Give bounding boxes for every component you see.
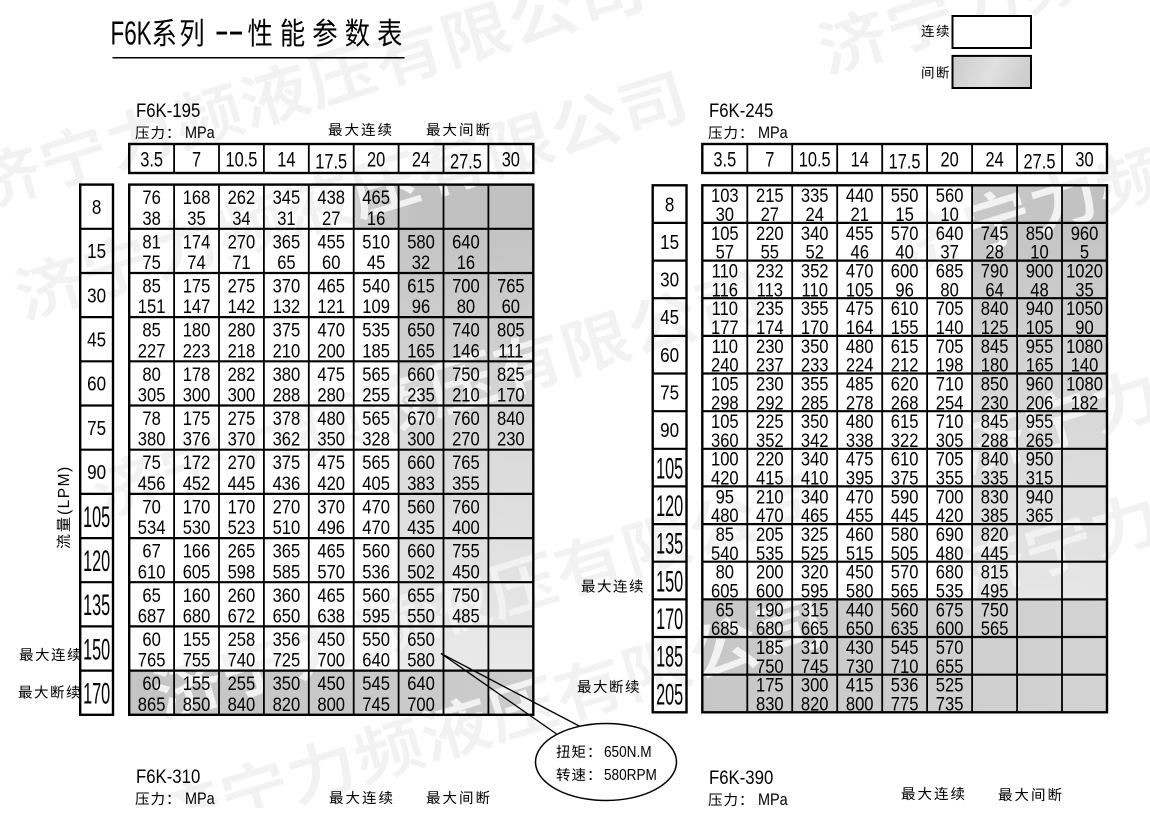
svg-text:170: 170 bbox=[183, 496, 211, 518]
svg-text:765: 765 bbox=[497, 275, 525, 297]
svg-text:485: 485 bbox=[452, 605, 480, 627]
svg-text:F6K-195: F6K-195 bbox=[136, 100, 200, 121]
svg-text:175: 175 bbox=[183, 275, 211, 297]
svg-text:MPa: MPa bbox=[758, 124, 788, 142]
svg-text:150: 150 bbox=[656, 565, 683, 599]
svg-text:438: 438 bbox=[317, 187, 345, 209]
svg-text:F6K: F6K bbox=[111, 14, 152, 51]
svg-text:465: 465 bbox=[362, 187, 390, 209]
svg-text:502: 502 bbox=[407, 561, 435, 583]
svg-text:282: 282 bbox=[228, 364, 256, 386]
svg-text:400: 400 bbox=[452, 517, 480, 539]
svg-text:640: 640 bbox=[407, 673, 435, 695]
svg-text:550: 550 bbox=[407, 605, 435, 627]
svg-text:168: 168 bbox=[183, 187, 211, 209]
svg-text:750: 750 bbox=[452, 585, 480, 607]
svg-text:15: 15 bbox=[660, 231, 679, 254]
svg-text:455: 455 bbox=[317, 231, 345, 253]
svg-text:370: 370 bbox=[273, 275, 301, 297]
svg-text:800: 800 bbox=[846, 693, 874, 715]
svg-text:120: 120 bbox=[656, 490, 683, 524]
svg-text:750: 750 bbox=[452, 364, 480, 386]
svg-text:755: 755 bbox=[183, 649, 211, 671]
svg-text:452: 452 bbox=[183, 473, 211, 495]
svg-text:235: 235 bbox=[407, 384, 435, 406]
svg-text:81: 81 bbox=[142, 231, 160, 253]
svg-text:535: 535 bbox=[362, 319, 390, 341]
svg-text:565: 565 bbox=[362, 408, 390, 430]
svg-text:305: 305 bbox=[138, 384, 166, 406]
svg-text:420: 420 bbox=[317, 473, 345, 495]
svg-text:270: 270 bbox=[228, 452, 256, 474]
svg-text:260: 260 bbox=[228, 585, 256, 607]
svg-text:740: 740 bbox=[228, 649, 256, 671]
svg-text:536: 536 bbox=[362, 561, 390, 583]
svg-text:805: 805 bbox=[497, 319, 525, 341]
svg-text:10.5: 10.5 bbox=[225, 147, 257, 170]
svg-text:255: 255 bbox=[228, 673, 256, 695]
svg-text:218: 218 bbox=[228, 340, 256, 362]
svg-text:530: 530 bbox=[183, 517, 211, 539]
svg-text:280: 280 bbox=[228, 319, 256, 341]
svg-text:170: 170 bbox=[83, 677, 110, 711]
svg-text:480: 480 bbox=[317, 408, 345, 430]
svg-text:280: 280 bbox=[317, 384, 345, 406]
svg-text:210: 210 bbox=[452, 384, 480, 406]
svg-text:155: 155 bbox=[183, 673, 211, 695]
svg-text:10.5: 10.5 bbox=[799, 147, 831, 170]
svg-text:35: 35 bbox=[187, 208, 205, 230]
svg-text:65: 65 bbox=[142, 585, 160, 607]
svg-text:380: 380 bbox=[138, 428, 166, 450]
svg-text:465: 465 bbox=[317, 540, 345, 562]
svg-text:470: 470 bbox=[317, 319, 345, 341]
svg-text:270: 270 bbox=[452, 428, 480, 450]
svg-text:24: 24 bbox=[985, 147, 1003, 170]
svg-text:378: 378 bbox=[273, 408, 301, 430]
svg-text:362: 362 bbox=[273, 428, 301, 450]
svg-text:560: 560 bbox=[407, 496, 435, 518]
svg-text:560: 560 bbox=[362, 540, 390, 562]
svg-text:20: 20 bbox=[367, 147, 385, 170]
svg-text:800: 800 bbox=[317, 694, 345, 716]
svg-text:328: 328 bbox=[362, 428, 390, 450]
svg-text:F6K-390: F6K-390 bbox=[709, 767, 773, 788]
svg-text:24: 24 bbox=[412, 147, 430, 170]
svg-text:7: 7 bbox=[765, 147, 774, 170]
svg-text:830: 830 bbox=[756, 693, 784, 715]
svg-text:227: 227 bbox=[138, 340, 166, 362]
svg-text:166: 166 bbox=[183, 540, 211, 562]
svg-text:350: 350 bbox=[273, 673, 301, 695]
svg-text:405: 405 bbox=[362, 473, 390, 495]
svg-text:475: 475 bbox=[317, 452, 345, 474]
svg-text:540: 540 bbox=[362, 275, 390, 297]
svg-text:132: 132 bbox=[273, 296, 301, 318]
svg-text:450: 450 bbox=[452, 561, 480, 583]
svg-text:17.5: 17.5 bbox=[315, 149, 347, 172]
svg-text:450: 450 bbox=[317, 673, 345, 695]
svg-text:109: 109 bbox=[362, 296, 390, 318]
svg-text:775: 775 bbox=[891, 693, 919, 715]
svg-text:75: 75 bbox=[142, 252, 160, 274]
svg-text:865: 865 bbox=[138, 694, 166, 716]
svg-text:570: 570 bbox=[317, 561, 345, 583]
svg-text:640: 640 bbox=[362, 649, 390, 671]
svg-text:510: 510 bbox=[273, 517, 301, 539]
svg-text:470: 470 bbox=[362, 517, 390, 539]
svg-text:75: 75 bbox=[660, 381, 679, 404]
svg-text:8: 8 bbox=[92, 196, 101, 219]
svg-text:175: 175 bbox=[183, 408, 211, 430]
svg-text:740: 740 bbox=[452, 319, 480, 341]
svg-text:71: 71 bbox=[232, 252, 250, 274]
svg-text:205: 205 bbox=[656, 678, 683, 712]
svg-text:146: 146 bbox=[452, 340, 480, 362]
svg-text:80: 80 bbox=[142, 364, 160, 386]
svg-text:650N.M: 650N.M bbox=[604, 744, 652, 761]
svg-text:745: 745 bbox=[362, 694, 390, 716]
svg-text:355: 355 bbox=[452, 473, 480, 495]
svg-text:565: 565 bbox=[362, 364, 390, 386]
svg-text:17.5: 17.5 bbox=[889, 149, 921, 172]
svg-text:376: 376 bbox=[183, 428, 211, 450]
svg-text:170: 170 bbox=[228, 496, 256, 518]
svg-text:16: 16 bbox=[457, 252, 475, 274]
svg-text:445: 445 bbox=[228, 473, 256, 495]
svg-text:182: 182 bbox=[1071, 392, 1099, 414]
svg-text:30: 30 bbox=[660, 268, 679, 291]
svg-text:598: 598 bbox=[228, 561, 256, 583]
svg-text:32: 32 bbox=[412, 252, 430, 274]
svg-text:105: 105 bbox=[83, 501, 110, 535]
svg-text:765: 765 bbox=[138, 649, 166, 671]
svg-text:360: 360 bbox=[273, 585, 301, 607]
svg-text:7: 7 bbox=[192, 147, 201, 170]
svg-text:27.5: 27.5 bbox=[450, 149, 482, 172]
svg-text:288: 288 bbox=[273, 384, 301, 406]
svg-text:60: 60 bbox=[322, 252, 340, 274]
svg-text:147: 147 bbox=[183, 296, 211, 318]
svg-text:650: 650 bbox=[273, 605, 301, 627]
svg-text:30: 30 bbox=[87, 284, 106, 307]
svg-text:560: 560 bbox=[362, 585, 390, 607]
svg-text:96: 96 bbox=[412, 296, 430, 318]
svg-text:300: 300 bbox=[407, 428, 435, 450]
svg-text:765: 765 bbox=[452, 452, 480, 474]
svg-text:60: 60 bbox=[502, 296, 520, 318]
svg-text:580RPM: 580RPM bbox=[604, 767, 657, 784]
svg-text:67: 67 bbox=[142, 540, 160, 562]
svg-text:456: 456 bbox=[138, 473, 166, 495]
svg-text:825: 825 bbox=[497, 364, 525, 386]
svg-text:151: 151 bbox=[138, 296, 166, 318]
svg-text:150: 150 bbox=[83, 633, 110, 667]
svg-text:F6K-310: F6K-310 bbox=[136, 766, 200, 787]
svg-text:45: 45 bbox=[660, 306, 679, 329]
svg-text:370: 370 bbox=[317, 496, 345, 518]
svg-text:595: 595 bbox=[362, 605, 390, 627]
svg-text:275: 275 bbox=[228, 275, 256, 297]
svg-text:30: 30 bbox=[1075, 147, 1093, 170]
svg-text:76: 76 bbox=[142, 187, 160, 209]
svg-text:38: 38 bbox=[142, 208, 160, 230]
svg-text:365: 365 bbox=[273, 540, 301, 562]
svg-text:121: 121 bbox=[317, 296, 345, 318]
svg-text:MPa: MPa bbox=[185, 124, 215, 142]
svg-text:523: 523 bbox=[228, 517, 256, 539]
svg-text:14: 14 bbox=[277, 147, 295, 170]
svg-text:375: 375 bbox=[273, 319, 301, 341]
svg-text:820: 820 bbox=[273, 694, 301, 716]
svg-text:270: 270 bbox=[273, 496, 301, 518]
svg-text:300: 300 bbox=[183, 384, 211, 406]
svg-text:345: 345 bbox=[273, 187, 301, 209]
svg-text:60: 60 bbox=[87, 372, 106, 395]
svg-text:840: 840 bbox=[497, 408, 525, 430]
svg-text:70: 70 bbox=[142, 496, 160, 518]
svg-text:120: 120 bbox=[83, 545, 110, 579]
svg-text:80: 80 bbox=[457, 296, 475, 318]
svg-text:142: 142 bbox=[228, 296, 256, 318]
svg-text:565: 565 bbox=[362, 452, 390, 474]
svg-text:15: 15 bbox=[87, 240, 106, 263]
svg-text:660: 660 bbox=[407, 364, 435, 386]
svg-text:90: 90 bbox=[660, 419, 679, 442]
svg-text:580: 580 bbox=[407, 649, 435, 671]
svg-text:178: 178 bbox=[183, 364, 211, 386]
svg-text:230: 230 bbox=[497, 428, 525, 450]
svg-text:265: 265 bbox=[228, 540, 256, 562]
svg-text:465: 465 bbox=[317, 585, 345, 607]
svg-text:660: 660 bbox=[407, 540, 435, 562]
svg-text:45: 45 bbox=[367, 252, 385, 274]
svg-text:200: 200 bbox=[317, 340, 345, 362]
svg-text:534: 534 bbox=[138, 517, 166, 539]
svg-text:672: 672 bbox=[228, 605, 256, 627]
svg-text:585: 585 bbox=[273, 561, 301, 583]
svg-text:34: 34 bbox=[232, 208, 250, 230]
svg-text:258: 258 bbox=[228, 629, 256, 651]
svg-text:160: 160 bbox=[183, 585, 211, 607]
svg-text:356: 356 bbox=[273, 629, 301, 651]
svg-text:185: 185 bbox=[656, 641, 683, 675]
svg-text:685: 685 bbox=[711, 618, 739, 640]
svg-text:615: 615 bbox=[407, 275, 435, 297]
svg-text:75: 75 bbox=[87, 416, 106, 439]
svg-text:262: 262 bbox=[228, 187, 256, 209]
svg-text:660: 660 bbox=[407, 452, 435, 474]
svg-text:F6K-245: F6K-245 bbox=[709, 100, 773, 121]
svg-text:650: 650 bbox=[407, 319, 435, 341]
svg-text:700: 700 bbox=[317, 649, 345, 671]
svg-text:8: 8 bbox=[665, 193, 674, 216]
svg-text:174: 174 bbox=[183, 231, 211, 253]
svg-text:820: 820 bbox=[801, 693, 829, 715]
svg-text:550: 550 bbox=[362, 629, 390, 651]
svg-text:210: 210 bbox=[273, 340, 301, 362]
svg-text:670: 670 bbox=[407, 408, 435, 430]
svg-text:450: 450 bbox=[317, 629, 345, 651]
svg-text:78: 78 bbox=[142, 408, 160, 430]
svg-text:60: 60 bbox=[660, 344, 679, 367]
svg-text:3.5: 3.5 bbox=[713, 147, 736, 170]
svg-text:27: 27 bbox=[322, 208, 340, 230]
svg-text:610: 610 bbox=[138, 561, 166, 583]
svg-text:270: 270 bbox=[228, 231, 256, 253]
svg-text:75: 75 bbox=[142, 452, 160, 474]
svg-text:135: 135 bbox=[656, 528, 683, 562]
svg-text:380: 380 bbox=[273, 364, 301, 386]
svg-text:155: 155 bbox=[183, 629, 211, 651]
svg-text:MPa: MPa bbox=[185, 790, 215, 808]
svg-text:605: 605 bbox=[183, 561, 211, 583]
svg-text:370: 370 bbox=[228, 428, 256, 450]
svg-text:170: 170 bbox=[656, 603, 683, 637]
svg-text:350: 350 bbox=[317, 428, 345, 450]
svg-text:74: 74 bbox=[187, 252, 205, 274]
svg-text:638: 638 bbox=[317, 605, 345, 627]
svg-text:MPa: MPa bbox=[758, 791, 788, 808]
svg-text:735: 735 bbox=[936, 693, 964, 715]
svg-text:850: 850 bbox=[183, 694, 211, 716]
svg-text:760: 760 bbox=[452, 496, 480, 518]
svg-text:111: 111 bbox=[498, 340, 523, 362]
svg-text:565: 565 bbox=[981, 618, 1009, 640]
svg-text:60: 60 bbox=[142, 629, 160, 651]
svg-text:172: 172 bbox=[183, 452, 211, 474]
svg-text:365: 365 bbox=[1026, 505, 1054, 527]
svg-text:755: 755 bbox=[452, 540, 480, 562]
svg-text:545: 545 bbox=[362, 673, 390, 695]
svg-text:700: 700 bbox=[452, 275, 480, 297]
svg-text:180: 180 bbox=[183, 319, 211, 341]
svg-text:27.5: 27.5 bbox=[1024, 149, 1056, 172]
svg-text:255: 255 bbox=[362, 384, 390, 406]
svg-text:275: 275 bbox=[228, 408, 256, 430]
svg-text:223: 223 bbox=[183, 340, 211, 362]
svg-text:135: 135 bbox=[83, 589, 110, 623]
svg-text:105: 105 bbox=[656, 452, 683, 486]
svg-text:185: 185 bbox=[362, 340, 390, 362]
svg-text:165: 165 bbox=[407, 340, 435, 362]
svg-text:465: 465 bbox=[317, 275, 345, 297]
svg-text:16: 16 bbox=[367, 208, 385, 230]
svg-text:580: 580 bbox=[407, 231, 435, 253]
svg-text:20: 20 bbox=[940, 147, 958, 170]
svg-text:365: 365 bbox=[273, 231, 301, 253]
svg-text:(LPM): (LPM) bbox=[56, 465, 73, 515]
svg-text:3.5: 3.5 bbox=[140, 147, 163, 170]
svg-text:470: 470 bbox=[362, 496, 390, 518]
svg-text:725: 725 bbox=[273, 649, 301, 671]
svg-text:14: 14 bbox=[851, 147, 869, 170]
svg-text:655: 655 bbox=[407, 585, 435, 607]
svg-text:760: 760 bbox=[452, 408, 480, 430]
svg-text:510: 510 bbox=[362, 231, 390, 253]
svg-text:31: 31 bbox=[277, 208, 295, 230]
svg-text:700: 700 bbox=[407, 694, 435, 716]
svg-text:436: 436 bbox=[273, 473, 301, 495]
svg-text:45: 45 bbox=[87, 328, 106, 351]
svg-text:375: 375 bbox=[273, 452, 301, 474]
svg-text:840: 840 bbox=[228, 694, 256, 716]
svg-text:65: 65 bbox=[277, 252, 295, 274]
svg-text:85: 85 bbox=[142, 275, 160, 297]
svg-text:680: 680 bbox=[183, 605, 211, 627]
svg-text:60: 60 bbox=[142, 673, 160, 695]
svg-text:300: 300 bbox=[228, 384, 256, 406]
svg-text:85: 85 bbox=[142, 319, 160, 341]
svg-text:30: 30 bbox=[502, 147, 520, 170]
svg-text:640: 640 bbox=[452, 231, 480, 253]
svg-text:475: 475 bbox=[317, 364, 345, 386]
svg-text:650: 650 bbox=[407, 629, 435, 651]
svg-text:383: 383 bbox=[407, 473, 435, 495]
svg-text:435: 435 bbox=[407, 517, 435, 539]
svg-text:496: 496 bbox=[317, 517, 345, 539]
svg-text:90: 90 bbox=[87, 461, 106, 484]
svg-text:170: 170 bbox=[497, 384, 525, 406]
svg-text:687: 687 bbox=[138, 605, 166, 627]
